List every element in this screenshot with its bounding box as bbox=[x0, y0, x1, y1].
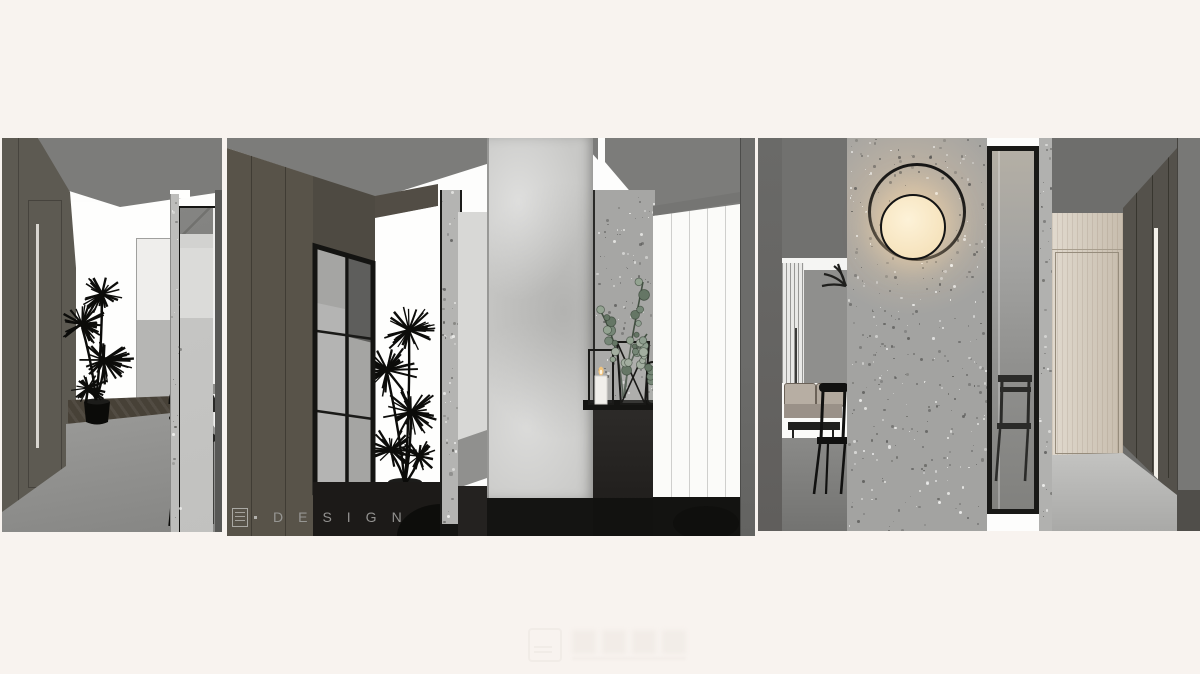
right-wall-edge bbox=[215, 190, 222, 532]
seal-line bbox=[235, 516, 245, 517]
watermark-dot bbox=[254, 516, 257, 519]
black-stool bbox=[673, 506, 739, 536]
plant-leaves-silhouette bbox=[820, 262, 848, 288]
slat-screen bbox=[782, 263, 804, 383]
wardrobe-seam bbox=[1152, 172, 1153, 472]
corridor-right-wall bbox=[1177, 138, 1200, 531]
partition-glass bbox=[178, 206, 215, 532]
faint-underline bbox=[572, 657, 686, 660]
glass-display-door bbox=[313, 243, 375, 509]
seal-line bbox=[235, 512, 245, 513]
back-hall-floor bbox=[458, 430, 487, 490]
wardrobe-seam bbox=[1168, 156, 1169, 478]
faint-glyph bbox=[602, 630, 626, 654]
faint-glyph bbox=[662, 630, 686, 654]
faint-glyph bbox=[572, 630, 596, 654]
jamb-shadow bbox=[440, 524, 458, 536]
slat-line bbox=[671, 198, 672, 497]
panel-corridor-view bbox=[758, 138, 1200, 531]
slat-line bbox=[689, 198, 690, 497]
wood-door bbox=[1052, 213, 1123, 455]
black-dining-chair bbox=[813, 381, 851, 496]
glass-pane-tint bbox=[178, 206, 219, 532]
pillar-base-shadow bbox=[487, 498, 593, 536]
wall-above-opening bbox=[782, 138, 847, 258]
corridor-left-wall bbox=[758, 138, 782, 531]
back-hall-wall bbox=[458, 212, 487, 440]
panel-right-edge-wall bbox=[740, 138, 755, 536]
wall-lamp-globe bbox=[880, 194, 946, 260]
floor-lamp-pole bbox=[795, 328, 797, 384]
faint-watermark bbox=[528, 626, 698, 664]
wall-seam bbox=[18, 138, 19, 532]
glass-insert-pane bbox=[992, 151, 1034, 509]
living-room-opening bbox=[782, 138, 847, 531]
handle-light-strip bbox=[1154, 228, 1158, 490]
wood-cabinet-wall bbox=[227, 138, 313, 536]
panel-entry-view: DESIGN bbox=[227, 138, 755, 536]
seal-line bbox=[235, 520, 245, 521]
watermark-seal bbox=[232, 508, 248, 527]
corner-shadow bbox=[1177, 490, 1200, 531]
plant-pot bbox=[84, 402, 110, 425]
terrazzo-jamb bbox=[1039, 138, 1052, 531]
wardrobe-seam bbox=[1136, 188, 1137, 468]
back-hall-shadow bbox=[458, 486, 487, 536]
door-leaf-outline bbox=[1055, 252, 1119, 454]
slat-line bbox=[725, 198, 726, 497]
faint-watermark-logo bbox=[528, 628, 562, 662]
slat-wall bbox=[653, 198, 740, 497]
glass-insert-frame bbox=[987, 146, 1039, 514]
panel-hallway-view bbox=[2, 138, 222, 532]
reflected-chair bbox=[994, 373, 1034, 485]
door-gap-light bbox=[36, 224, 39, 448]
palm-plant bbox=[58, 276, 134, 430]
partition-concrete-post bbox=[170, 194, 179, 532]
logo-bar bbox=[534, 651, 552, 653]
interior-rendering-stage: DESIGN bbox=[0, 0, 1200, 674]
faint-glyph bbox=[632, 630, 656, 654]
wardrobe bbox=[1123, 148, 1177, 498]
wood-seam bbox=[285, 164, 286, 536]
logo-bar bbox=[534, 646, 552, 648]
wall-door-outline bbox=[28, 200, 62, 488]
concrete-pillar bbox=[487, 138, 593, 498]
slat-line bbox=[707, 198, 708, 497]
watermark-design-text: DESIGN bbox=[273, 509, 417, 525]
wood-seam bbox=[251, 152, 252, 536]
pillar-candle bbox=[595, 376, 607, 404]
door-header-seam bbox=[1052, 249, 1123, 250]
